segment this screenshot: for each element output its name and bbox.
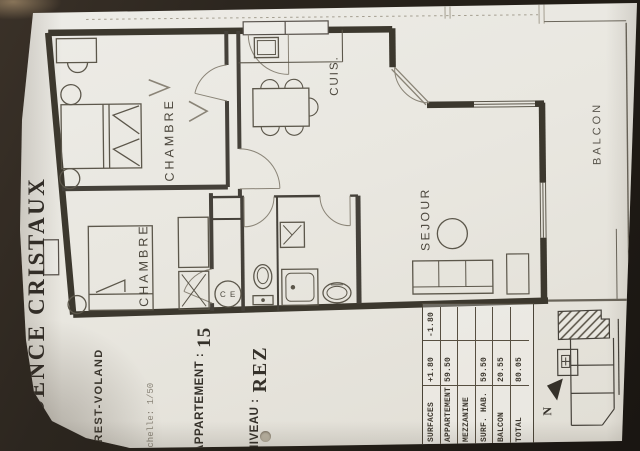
surfaces-table: SURFACES +1.80 -1.80 APPARTEMENT 59.50 M… — [422, 303, 534, 446]
label-chauffe-eau: C E — [220, 290, 236, 299]
label-balcon: BALCON — [591, 102, 604, 165]
table-row-value — [458, 307, 476, 340]
table-row-value — [476, 307, 494, 340]
table-row-value — [511, 307, 529, 340]
table-row-label: APPARTEMENT — [441, 385, 459, 445]
chambre1-furniture — [56, 38, 142, 189]
kitchen-furniture — [238, 30, 343, 136]
table-row-value: 59.50 — [476, 340, 494, 385]
table-header-minus: -1.80 — [423, 307, 441, 340]
table-row-value — [493, 307, 511, 340]
level-value: REZ — [249, 345, 272, 392]
north-arrow: N — [540, 378, 563, 415]
table-row-value: 20.55 — [493, 340, 511, 385]
scale-label: Echelle: 1/50 — [146, 385, 158, 451]
photo-scene: CHAMBRE CHAMBRE CUIS. SEJOUR BALCON C E … — [0, 0, 640, 451]
apartment-number: 15 — [194, 327, 216, 348]
level-label: NIVEAU : — [249, 399, 261, 451]
location-label: CREST-VOLAND — [93, 348, 108, 451]
table-header-surfaces: SURFACES — [423, 385, 441, 445]
window-lines — [474, 101, 546, 239]
table-header-plus: +1.80 — [423, 340, 441, 385]
table-row-value: 59.50 — [441, 340, 459, 385]
table-row-label: BALCON — [493, 385, 511, 445]
label-cuisine: CUIS. — [328, 55, 340, 96]
residence-title: RESIDENCE CRISTAUX — [24, 195, 60, 451]
room-labels: CHAMBRE CHAMBRE CUIS. SEJOUR BALCON C E — [134, 52, 605, 307]
balcony-outline — [544, 21, 629, 301]
surfaces-table-grid: SURFACES +1.80 -1.80 APPARTEMENT 59.50 M… — [423, 304, 533, 445]
table-row-label: TOTAL — [511, 385, 529, 445]
table-row-value — [441, 307, 459, 340]
hole-punch — [260, 431, 271, 442]
table-row-value — [458, 340, 476, 385]
apartment-label: APPARTEMENT : — [194, 353, 206, 451]
site-key-plan — [557, 310, 619, 426]
table-row-label: MEZZANINE — [458, 385, 476, 445]
door-swings — [148, 33, 431, 304]
table-row-label: SURF. HAB. — [476, 385, 494, 445]
interior-walls — [60, 30, 359, 313]
window-thresholds — [41, 21, 331, 275]
table-row-value: 80.05 — [511, 340, 529, 385]
north-label: N — [540, 407, 554, 416]
plan-paper: CHAMBRE CHAMBRE CUIS. SEJOUR BALCON C E … — [0, 0, 640, 451]
label-sejour: SEJOUR — [418, 187, 433, 251]
apartment-title: APPARTEMENT : 15 — [194, 325, 218, 451]
label-chambre-1: CHAMBRE — [162, 98, 177, 182]
exterior-walls — [48, 27, 548, 315]
label-chambre-2: CHAMBRE — [136, 223, 151, 307]
